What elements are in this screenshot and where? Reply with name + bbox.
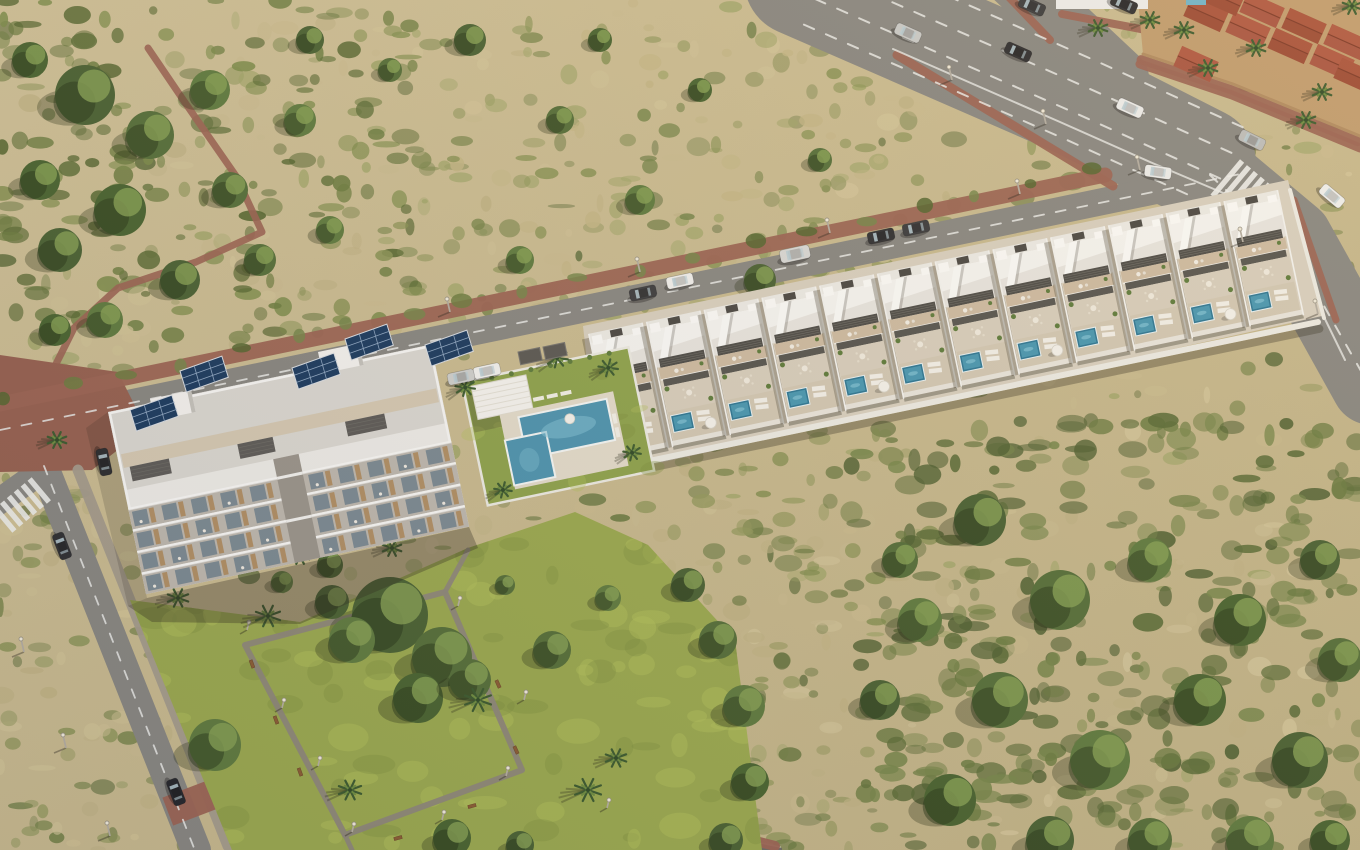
aerial-render-of-residential-development: [0, 0, 1360, 850]
sunlight-overlay: [0, 0, 1360, 850]
aerial-scene-svg: [0, 0, 1360, 850]
